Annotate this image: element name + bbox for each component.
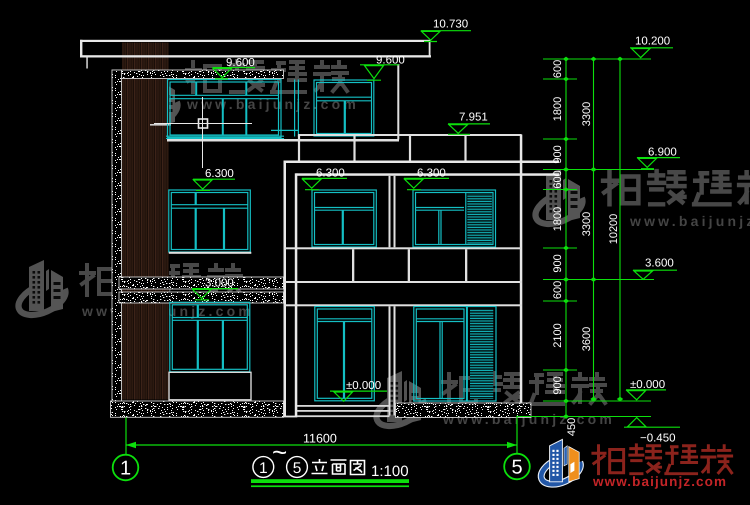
svg-text:11600: 11600 bbox=[303, 432, 337, 446]
svg-text:10.200: 10.200 bbox=[635, 36, 670, 48]
svg-text:10200: 10200 bbox=[608, 214, 620, 245]
svg-text:6.300: 6.300 bbox=[205, 168, 234, 180]
svg-text:1800: 1800 bbox=[552, 207, 564, 231]
svg-text:600: 600 bbox=[552, 281, 564, 299]
svg-text:900: 900 bbox=[552, 376, 564, 394]
svg-text:3300: 3300 bbox=[581, 102, 593, 126]
svg-text:~: ~ bbox=[272, 437, 287, 467]
svg-text:6.300: 6.300 bbox=[316, 168, 345, 180]
svg-text:2100: 2100 bbox=[552, 323, 564, 347]
svg-text:6.900: 6.900 bbox=[648, 147, 677, 159]
svg-text:5: 5 bbox=[293, 460, 302, 477]
svg-text:450: 450 bbox=[566, 418, 578, 436]
svg-text:3.600: 3.600 bbox=[645, 258, 674, 270]
svg-text:www.baijunjz.com: www.baijunjz.com bbox=[592, 474, 727, 489]
svg-text:6.300: 6.300 bbox=[417, 168, 446, 180]
svg-text:±0.000: ±0.000 bbox=[630, 379, 665, 391]
svg-text:600: 600 bbox=[552, 60, 564, 78]
svg-text:1: 1 bbox=[259, 460, 268, 477]
svg-text:±0.000: ±0.000 bbox=[346, 380, 381, 392]
svg-text:1:100: 1:100 bbox=[371, 463, 409, 480]
svg-text:10.730: 10.730 bbox=[433, 19, 468, 31]
svg-text:900: 900 bbox=[552, 254, 564, 272]
svg-text:1: 1 bbox=[120, 458, 131, 480]
svg-text:−0.450: −0.450 bbox=[640, 433, 676, 445]
svg-text:3600: 3600 bbox=[581, 327, 593, 351]
svg-text:www.baijunjz.c: www.baijunjz.c bbox=[629, 213, 750, 229]
svg-text:1800: 1800 bbox=[552, 97, 564, 121]
svg-text:3.000: 3.000 bbox=[205, 278, 234, 290]
svg-text:3300: 3300 bbox=[581, 212, 593, 236]
svg-text:5: 5 bbox=[511, 457, 522, 479]
svg-text:7.951: 7.951 bbox=[459, 112, 488, 124]
svg-text:600: 600 bbox=[552, 170, 564, 188]
svg-text:900: 900 bbox=[552, 145, 564, 163]
